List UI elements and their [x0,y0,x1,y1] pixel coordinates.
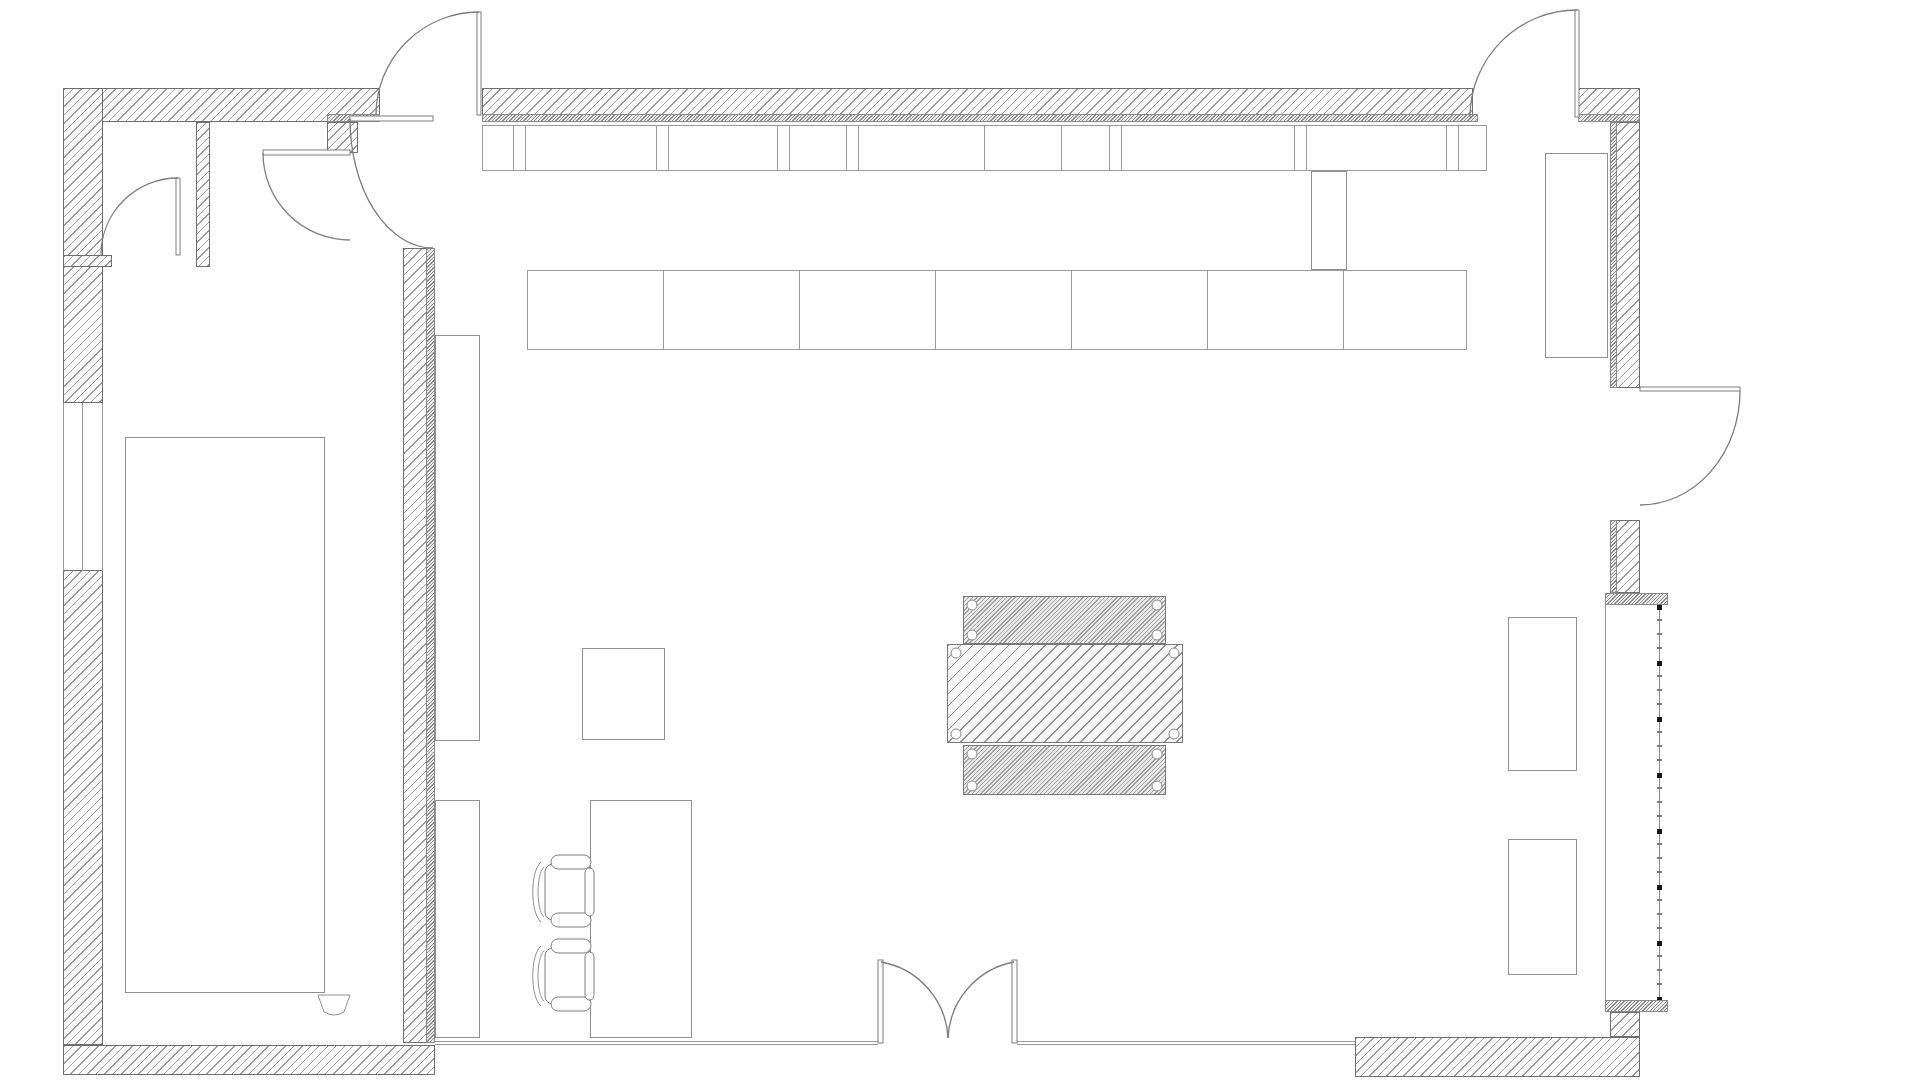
desk-chair-2-armrest-top [551,939,591,953]
desk-chair-1-backrest [533,862,541,922]
corridor-door-leaf [350,116,433,121]
wall-basin [318,995,350,1015]
table-main-leaf-screw-1 [951,648,961,658]
desk-chair-1-armrest-top [551,855,591,869]
double-door-right-leaf-swing-arc [948,962,1014,1038]
table-bottom-leaf-screw-3 [967,781,977,791]
desk-chair-1-side-bolster [585,868,594,916]
double-door-left-leaf-swing-arc [881,962,948,1038]
closet-door-swing-arc [101,178,178,255]
left-room-door-leaf [263,150,350,155]
table-main-leaf-screw-3 [951,729,961,739]
exterior-door-top-left-swing-arc [376,12,479,115]
desk-chair-1-seat [545,864,591,920]
desk-chair-2-backrest [533,946,541,1006]
floor-plan-vector-overlay [0,0,1920,1080]
double-door-left-leaf-leaf [878,960,883,1043]
table-bottom-leaf-screw-4 [1152,781,1162,791]
double-door-right-leaf-leaf [1012,960,1017,1043]
exterior-door-top-right-leaf [1575,10,1579,117]
table-bottom-leaf-screw-1 [967,749,977,759]
desk-chair-2-seat [545,948,591,1004]
desk-chair-2-armrest-bottom [551,997,591,1011]
table-top-leaf-screw-3 [967,630,977,640]
desk-chair-1-backrest-inner [538,867,544,917]
desk-chair-2-side-bolster [585,952,594,1000]
exterior-door-right-swing-arc [1640,391,1740,505]
table-top-leaf-screw-2 [1152,600,1162,610]
closet-door-leaf [176,178,180,255]
table-bottom-leaf-screw-2 [1152,749,1162,759]
desk-chair-2-backrest-inner [538,951,544,1001]
table-top-leaf-screw-1 [967,600,977,610]
table-top-leaf-screw-4 [1152,630,1162,640]
floor-plan-canvas [0,0,1920,1080]
corridor-door-swing-arc [350,119,433,248]
desk-chair-1-armrest-bottom [551,913,591,927]
exterior-door-top-right-swing-arc [1470,10,1577,117]
left-room-door-swing-arc [263,153,350,240]
exterior-door-right-leaf [1640,387,1740,391]
exterior-door-top-left-leaf [477,12,481,115]
table-main-leaf-screw-4 [1169,729,1179,739]
table-main-leaf-screw-2 [1169,648,1179,658]
